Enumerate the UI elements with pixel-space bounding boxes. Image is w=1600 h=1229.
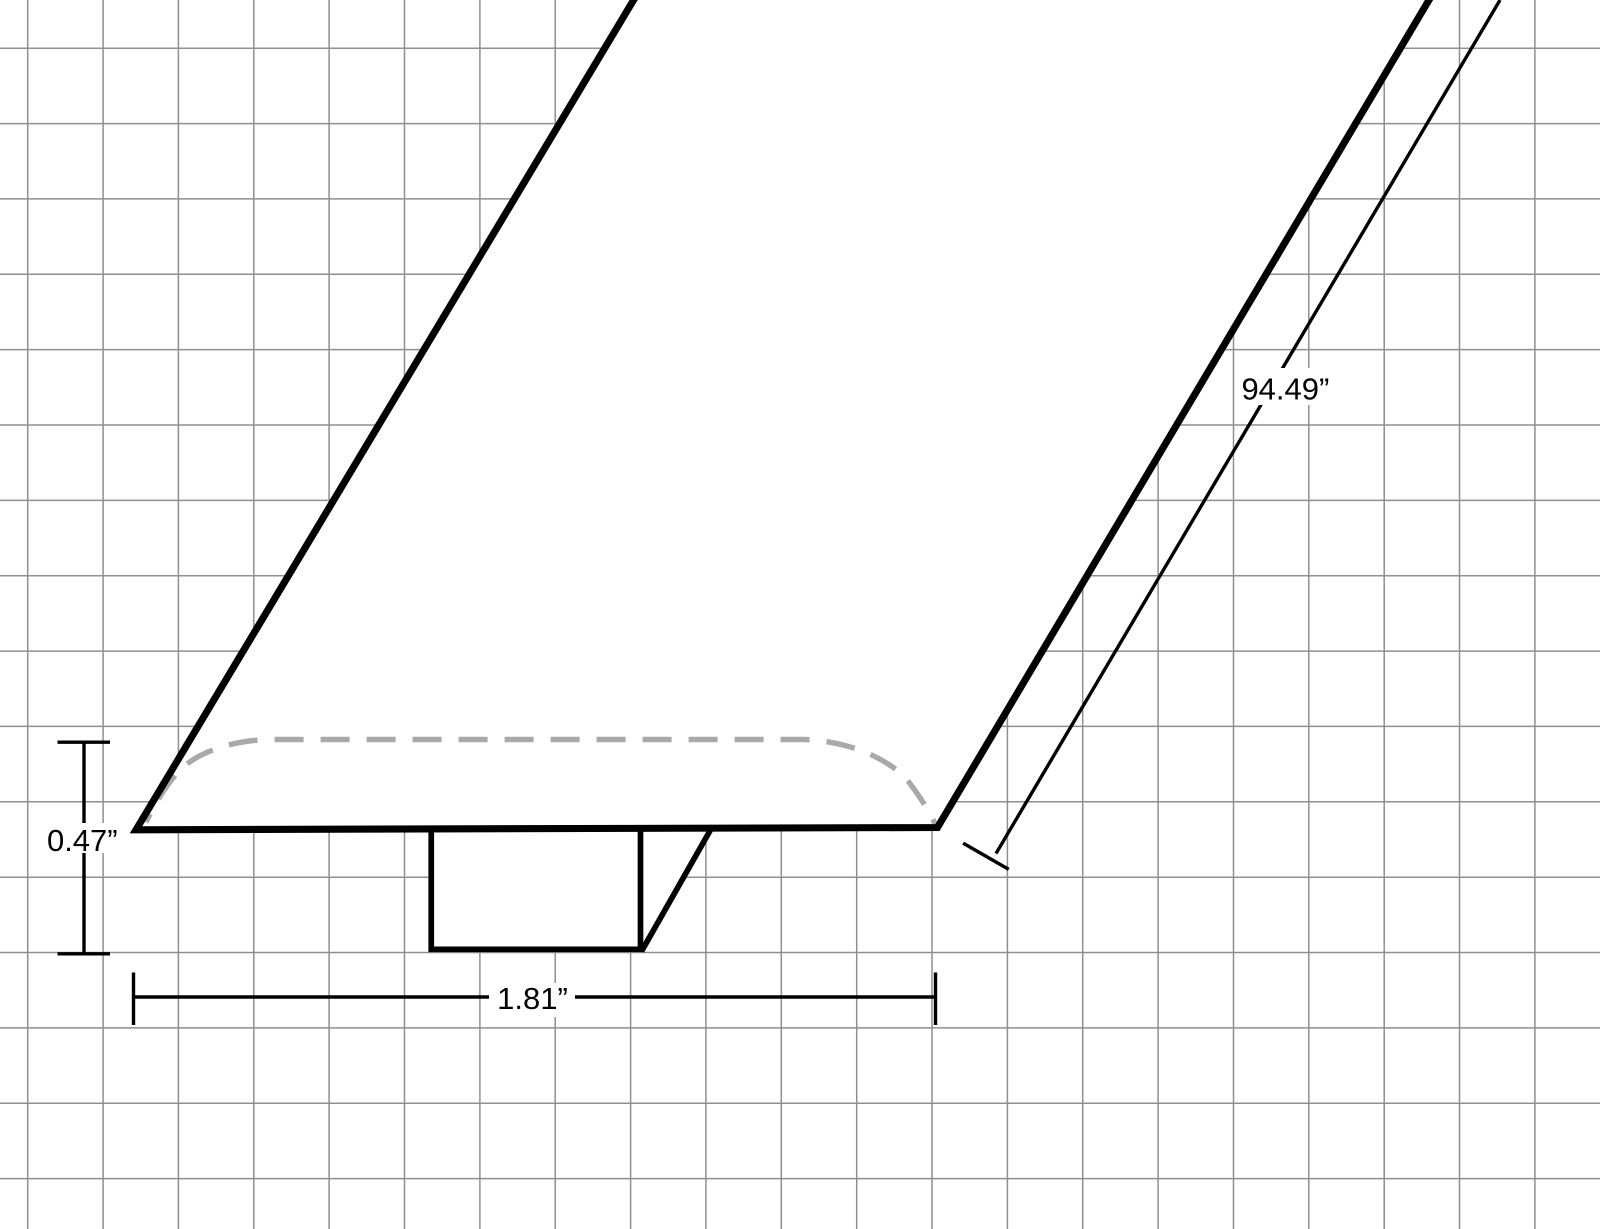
svg-text:0.47”: 0.47”: [47, 823, 118, 858]
svg-text:94.49”: 94.49”: [1241, 371, 1329, 406]
svg-text:1.81”: 1.81”: [497, 981, 568, 1016]
